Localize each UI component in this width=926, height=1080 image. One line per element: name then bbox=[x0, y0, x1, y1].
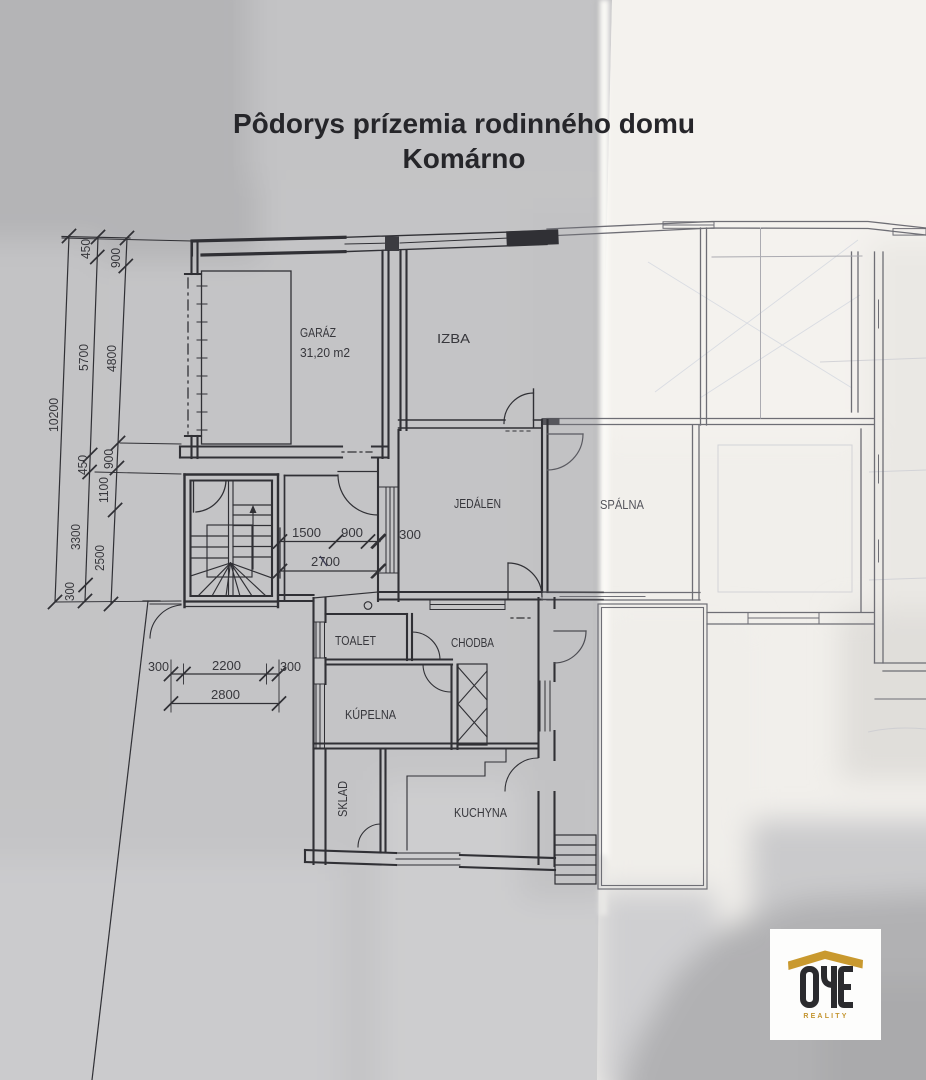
svg-text:450: 450 bbox=[78, 239, 93, 259]
svg-text:2700: 2700 bbox=[311, 554, 340, 569]
svg-text:SKLAD: SKLAD bbox=[335, 781, 350, 817]
svg-text:SPÁLNA: SPÁLNA bbox=[600, 497, 644, 512]
svg-text:IZBA: IZBA bbox=[437, 331, 470, 346]
svg-text:KÚPELNA: KÚPELNA bbox=[345, 707, 396, 722]
svg-text:10200: 10200 bbox=[46, 398, 61, 432]
svg-text:300: 300 bbox=[148, 659, 169, 674]
svg-text:REALITY: REALITY bbox=[803, 1013, 848, 1020]
svg-text:GARÁZ: GARÁZ bbox=[300, 325, 336, 340]
svg-text:TOALET: TOALET bbox=[335, 633, 376, 648]
svg-text:5700: 5700 bbox=[76, 344, 91, 371]
svg-text:2200: 2200 bbox=[212, 658, 241, 673]
svg-text:CHODBA: CHODBA bbox=[451, 635, 494, 650]
svg-text:300: 300 bbox=[280, 659, 301, 674]
svg-text:1500: 1500 bbox=[292, 525, 321, 540]
svg-text:900: 900 bbox=[101, 449, 116, 469]
svg-text:300: 300 bbox=[62, 582, 77, 601]
svg-text:3300: 3300 bbox=[68, 524, 83, 550]
svg-text:31,20 m2: 31,20 m2 bbox=[300, 345, 350, 360]
svg-text:450: 450 bbox=[75, 455, 90, 475]
svg-text:JEDÁLEN: JEDÁLEN bbox=[454, 496, 501, 511]
svg-text:2800: 2800 bbox=[211, 687, 240, 702]
svg-text:Pôdorys prízemia rodinného dom: Pôdorys prízemia rodinného domu bbox=[233, 108, 695, 139]
svg-text:1100: 1100 bbox=[96, 477, 111, 503]
svg-text:KUCHYNA: KUCHYNA bbox=[454, 805, 507, 820]
svg-text:2500: 2500 bbox=[92, 545, 107, 571]
svg-text:300: 300 bbox=[399, 527, 421, 542]
svg-text:Komárno: Komárno bbox=[403, 143, 526, 174]
svg-text:900: 900 bbox=[341, 525, 363, 540]
svg-text:4800: 4800 bbox=[104, 345, 119, 372]
svg-text:900: 900 bbox=[108, 248, 123, 268]
